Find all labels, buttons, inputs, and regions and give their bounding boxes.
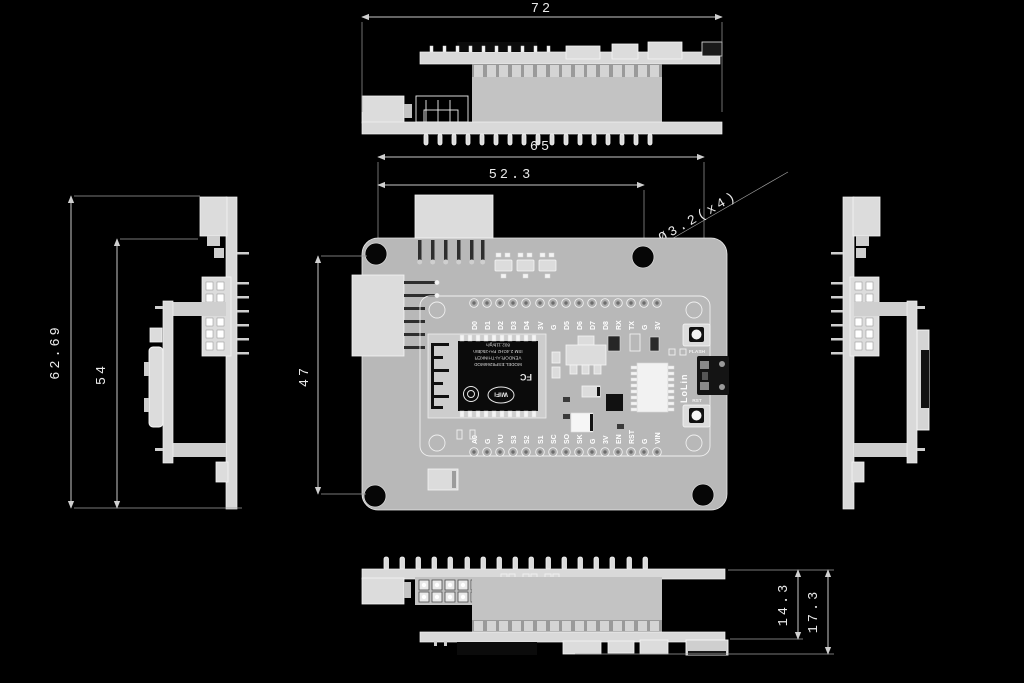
pin-label: G: [551, 324, 558, 330]
pin-label: 3V: [655, 321, 662, 330]
pin-label: S3: [511, 435, 518, 444]
header-housing: [472, 577, 662, 621]
pin-label: G: [642, 438, 649, 444]
pin-label: D8: [603, 321, 610, 330]
brand-text: LoLin: [679, 374, 689, 404]
pin-label: VIN: [655, 432, 662, 444]
pin-label: S1: [538, 435, 545, 444]
dim-label-52-3: 52.3: [489, 168, 533, 183]
pin: [831, 252, 843, 255]
usb-edge: [702, 42, 722, 56]
module-label-line2: VENDOR:AI-THINKER: [474, 356, 522, 361]
top-connector-edge: [853, 197, 880, 236]
pin-label: SC: [551, 434, 558, 444]
shield-edge: [921, 350, 929, 408]
pin-label: D0: [472, 321, 479, 330]
pin-label: A0: [472, 435, 479, 444]
pin-label: G: [485, 438, 492, 444]
module-label-line1: MODEL:ESP8266MOD: [473, 362, 521, 367]
flash-label: FLASH: [689, 349, 706, 355]
pin: [237, 252, 249, 255]
plan-view: D0 D1 D2 D3 D4 3V G D5 D6 D7 D8 RX TX G …: [352, 195, 729, 510]
pin-label: SK: [577, 434, 584, 444]
standoff-top: [173, 302, 226, 316]
nodemcu-baseboard-drawing: 72 65 52.3 Ø3.2(x4): [0, 0, 1024, 683]
fc-logo-text: FC: [520, 372, 532, 382]
female-header-edge: [202, 277, 231, 356]
standoff-top: [854, 302, 907, 316]
pin-label: S2: [524, 435, 531, 444]
pin-label: D5: [564, 321, 571, 330]
hole-bottom-left: [364, 485, 386, 507]
bottom-component: [216, 462, 228, 482]
pin-label: G: [590, 438, 597, 444]
wifi-logo-text: WiFi: [494, 391, 508, 398]
pin-label: VU: [498, 434, 505, 444]
pin-label: 3V: [538, 321, 545, 330]
standoff-bottom: [173, 443, 226, 457]
dim-label-65: 65: [530, 140, 552, 155]
pin-label: RX: [616, 320, 623, 330]
baseboard-edge: [362, 122, 722, 134]
dim-label-17-3: 17.3: [807, 589, 822, 633]
pin-label: SO: [564, 433, 571, 444]
standoff-bottom: [854, 443, 907, 457]
top-connector: [415, 195, 493, 238]
dim-label-72: 72: [531, 2, 553, 17]
hole-bottom-right: [692, 484, 714, 506]
usb-connector-edge: [362, 96, 404, 123]
dim-label-62-69: 62.69: [49, 324, 64, 380]
rst-label: RST: [692, 398, 702, 404]
hole-top-right: [632, 246, 654, 268]
pin-label: D6: [577, 321, 584, 330]
usb-uart-ic: [631, 363, 674, 412]
mechanical-drawing-canvas: 72 65 52.3 Ø3.2(x4): [0, 0, 1024, 683]
pin-label: EN: [616, 434, 623, 444]
pin-label: D4: [524, 321, 531, 330]
pin-label: D2: [498, 321, 505, 330]
dim-label-54: 54: [95, 363, 110, 385]
bottom-left-component: [428, 469, 458, 490]
module-label-line3: ISM 2.4GHz PA+25dBm: [473, 349, 522, 354]
hole-top-left: [365, 243, 387, 265]
module-board-edge: [907, 301, 917, 463]
dim-label-14-3: 14.3: [777, 582, 792, 626]
header-teeth: [472, 620, 662, 632]
left-connector: [352, 275, 404, 356]
pin-label: RST: [629, 429, 636, 444]
shield-edge: [457, 642, 537, 655]
pin-label: D3: [511, 321, 518, 330]
top-connector-edge: [200, 197, 227, 236]
module-pcb-edge: [420, 632, 725, 642]
pin-label: G: [642, 324, 649, 330]
dim-label-47: 47: [298, 365, 313, 387]
micro-usb-connector: [697, 356, 729, 395]
bottom-component: [852, 462, 864, 482]
female-header-edge: [850, 277, 879, 356]
header-housing: [472, 64, 662, 122]
usb-notch: [404, 104, 412, 118]
module-board-edge: [163, 301, 173, 463]
pin-label: D1: [485, 321, 492, 330]
pin-label: 3V: [603, 435, 610, 444]
module-label-line4: 802.11b/g/n: [486, 343, 510, 348]
pin-label: TX: [629, 321, 636, 330]
esp8266-module: MODEL:ESP8266MOD VENDOR:AI-THINKER ISM 2…: [428, 334, 546, 418]
pin-label: D7: [590, 321, 597, 330]
usb-connector-edge: [362, 578, 404, 604]
module-component: [150, 328, 162, 342]
